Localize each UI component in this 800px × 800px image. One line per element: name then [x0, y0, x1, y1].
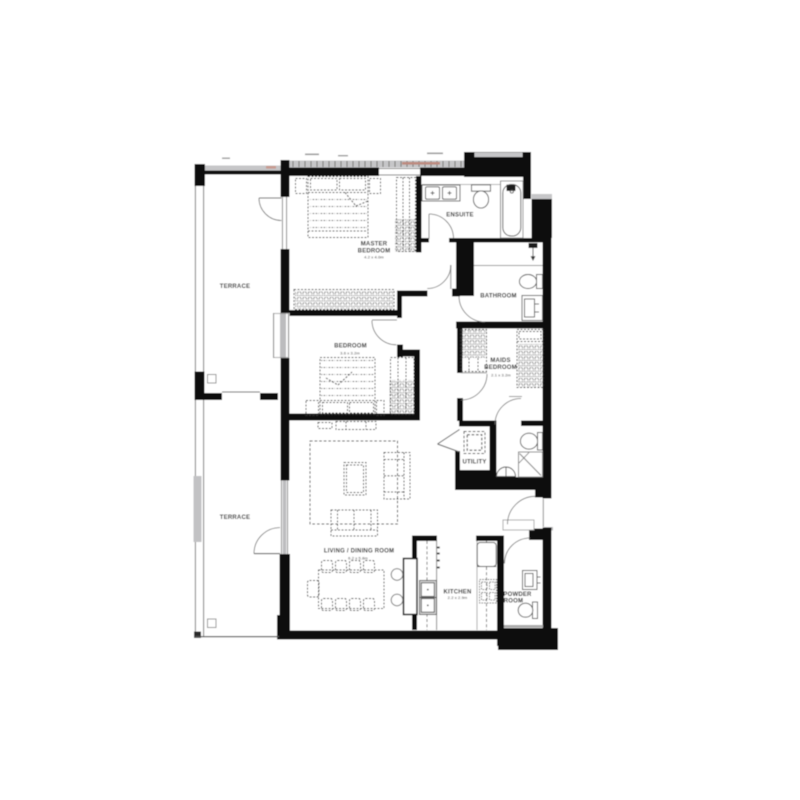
svg-text:TERRACE: TERRACE — [220, 515, 250, 521]
svg-text:BATHROOM: BATHROOM — [480, 294, 516, 300]
svg-text:BEDROOM: BEDROOM — [484, 365, 517, 371]
svg-text:BEDROOM: BEDROOM — [334, 344, 367, 350]
svg-text:MAIDS: MAIDS — [490, 358, 510, 364]
svg-text:POWDER: POWDER — [503, 592, 532, 598]
svg-text:TERRACE: TERRACE — [220, 284, 250, 290]
svg-text:ENSUITE: ENSUITE — [446, 213, 473, 219]
svg-text:UTILITY: UTILITY — [462, 460, 486, 466]
svg-text:2.1 x 3.2m: 2.1 x 3.2m — [491, 373, 511, 378]
svg-text:MASTER: MASTER — [361, 242, 388, 248]
svg-text:6.2 x 5.8m: 6.2 x 5.8m — [348, 556, 368, 561]
svg-text:LIVING / DINING ROOM: LIVING / DINING ROOM — [324, 549, 394, 555]
svg-text:2.2 x 2.9m: 2.2 x 2.9m — [448, 595, 468, 600]
svg-text:3.6 x 3.2m: 3.6 x 3.2m — [340, 351, 360, 356]
svg-text:4.2 x 4.0m: 4.2 x 4.0m — [364, 255, 384, 260]
svg-text:ROOM: ROOM — [504, 599, 523, 605]
